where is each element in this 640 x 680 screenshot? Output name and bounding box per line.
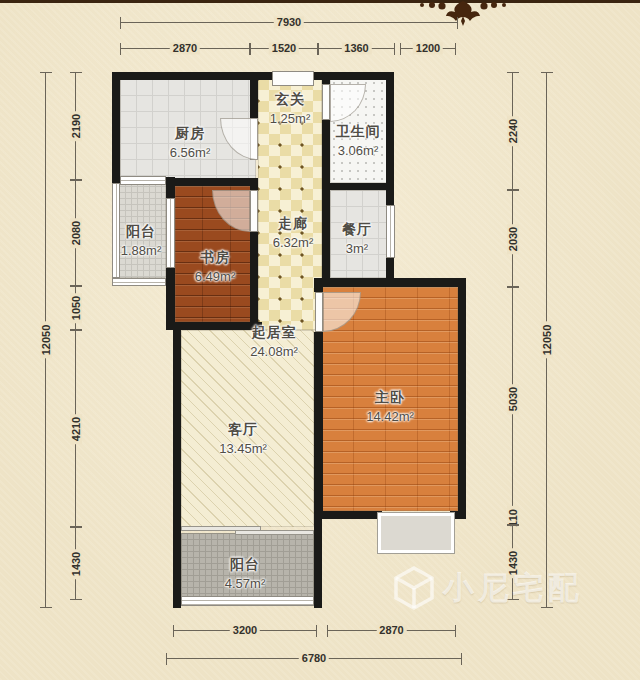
dimension-label: 12050	[40, 322, 52, 359]
room-label-balcony-left: 阳台 1.88m²	[121, 223, 161, 258]
room-area: 1.25m²	[270, 111, 310, 126]
room-label-study: 书房 6.49m²	[195, 249, 235, 284]
window-balcony-left-bottom	[112, 278, 166, 286]
dimension-left-seg: 1050	[75, 286, 76, 330]
sliding-door-rail	[235, 530, 314, 535]
wall-top-left	[112, 72, 272, 80]
window-balcony-left	[112, 183, 120, 278]
room-area: 1.88m²	[121, 243, 161, 258]
wall-corridor-dining	[322, 190, 330, 287]
dimension-right-total: 12050	[546, 72, 547, 608]
dimension-label: 2030	[507, 223, 519, 253]
room-area: 24.08m²	[250, 344, 298, 359]
wall-master-top	[314, 278, 466, 287]
room-label-living-core: 起居室 24.08m²	[250, 324, 298, 359]
dimension-left-seg: 2190	[75, 72, 76, 180]
decorative-top-border	[0, 0, 640, 3]
room-area: 13.45m²	[219, 441, 267, 456]
dimension-label: 1200	[413, 42, 443, 54]
room-label-living: 客厅 13.45m²	[219, 421, 267, 456]
room-label-corridor: 走廊 6.32m²	[273, 215, 313, 250]
room-area: 3m²	[342, 241, 372, 256]
dimension-left-seg: 1430	[75, 527, 76, 600]
dimension-left-seg: 2080	[75, 180, 76, 286]
room-name: 书房	[195, 249, 235, 267]
wall-corridor-bathroom	[322, 120, 330, 190]
wall-kitchen-bottom	[166, 178, 258, 186]
wall-stub	[322, 72, 330, 84]
bay-window-master	[378, 513, 454, 553]
room-name: 走廊	[273, 215, 313, 233]
room-name: 主卧	[366, 389, 414, 407]
room-label-kitchen: 厨房 6.56m²	[170, 125, 210, 160]
wall-study-corridor	[250, 232, 258, 330]
dimension-label: 110	[507, 506, 519, 530]
room-name: 阳台	[225, 556, 265, 574]
room-area: 3.06m²	[336, 143, 381, 158]
room-name: 起居室	[250, 324, 298, 342]
dimension-label: 2870	[376, 624, 406, 636]
room-name: 餐厅	[342, 221, 372, 239]
cube-logo-icon	[394, 566, 434, 610]
dimension-label: 1520	[269, 42, 299, 54]
room-area: 14.42m²	[366, 409, 414, 424]
window-dining-right	[386, 205, 395, 258]
dimension-label: 2190	[70, 111, 82, 141]
dimension-top-seg: 1200	[400, 48, 456, 49]
dimension-label: 3200	[230, 624, 260, 636]
dimension-bottom-seg: 2870	[327, 630, 456, 631]
dimension-label: 5030	[507, 384, 519, 414]
dimension-top-seg: 1360	[318, 48, 395, 49]
room-name: 客厅	[219, 421, 267, 439]
room-label-balcony-bottom: 阳台 4.57m²	[225, 556, 265, 591]
room-name: 阳台	[121, 223, 161, 241]
wall-stub	[314, 278, 323, 292]
dimension-top-total: 7930	[120, 22, 458, 23]
dimension-right-seg: 2240	[512, 72, 513, 190]
dimension-label: 6780	[299, 652, 329, 664]
dimension-label: 4210	[70, 413, 82, 443]
bathroom-door-leaf	[322, 84, 330, 120]
dimension-label: 1050	[70, 293, 82, 323]
dimension-label: 7930	[274, 16, 304, 28]
window-kitchen-balcony	[120, 176, 166, 185]
room-area: 4.57m²	[225, 576, 265, 591]
room-area: 6.32m²	[273, 235, 313, 250]
wall-master-right	[458, 278, 466, 519]
dimension-label: 1430	[70, 548, 82, 578]
room-label-bathroom: 卫生间 3.06m²	[336, 123, 381, 158]
dimension-bottom-seg: 3200	[173, 630, 317, 631]
dimension-label: 2240	[507, 116, 519, 146]
wall-kitchen-vestibule	[250, 72, 258, 118]
wall-bathroom-bottom	[322, 183, 394, 190]
dimension-label: 2080	[70, 218, 82, 248]
room-name: 玄关	[270, 91, 310, 109]
room-name: 卫生间	[336, 123, 381, 141]
dimension-top-seg: 2870	[120, 48, 250, 49]
room-label-dining: 餐厅 3m²	[342, 221, 372, 256]
floor-plan-page: 厨房 6.56m² 玄关 1.25m² 卫生间 3.06m² 阳台 1.88m²…	[0, 0, 640, 680]
dimension-left-total: 12050	[45, 72, 46, 608]
entry-door	[272, 71, 314, 86]
dimension-label: 12050	[541, 322, 553, 359]
dimension-bottom-total: 6780	[166, 658, 462, 659]
room-area: 6.49m²	[195, 269, 235, 284]
dimension-left-seg: 4210	[75, 330, 76, 527]
wall-left-upper	[112, 72, 120, 180]
watermark: 小尼宅配	[394, 566, 583, 610]
dimension-label: 2870	[170, 42, 200, 54]
dimension-top-seg: 1520	[250, 48, 318, 49]
room-label-vestibule: 玄关 1.25m²	[270, 91, 310, 126]
study-door-leaf	[250, 190, 258, 232]
wall-living-right	[314, 511, 322, 608]
window-study-balcony	[166, 198, 175, 268]
wall-master-left	[314, 332, 323, 511]
watermark-text: 小尼宅配	[443, 567, 583, 609]
wall-living-left	[173, 322, 181, 608]
dimension-right-seg: 5030	[512, 287, 513, 511]
room-area: 6.56m²	[170, 145, 210, 160]
room-name: 厨房	[170, 125, 210, 143]
window-balcony-bottom	[181, 596, 314, 606]
dimension-right-seg: 110	[512, 511, 513, 525]
dimension-label: 1360	[341, 42, 371, 54]
wall-master-bottom-left	[314, 511, 382, 519]
room-label-master-bedroom: 主卧 14.42m²	[366, 389, 414, 424]
master-door-leaf	[315, 292, 323, 332]
dimension-right-seg: 2030	[512, 190, 513, 287]
